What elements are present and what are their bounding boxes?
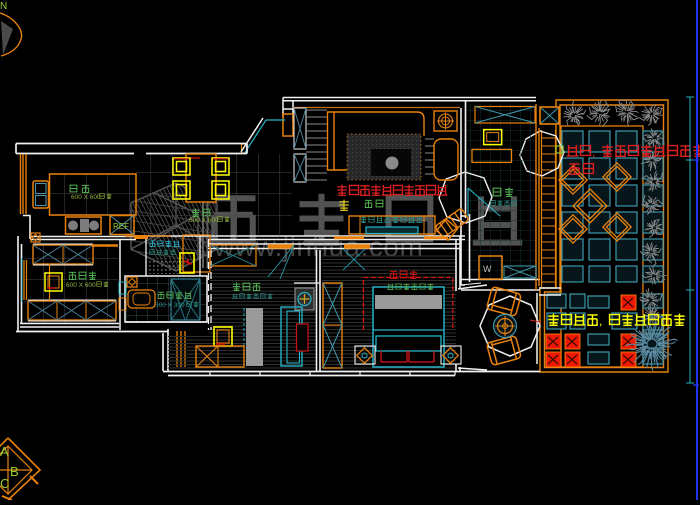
svg-text:REF: REF [113, 222, 129, 231]
svg-text:C: C [0, 476, 9, 491]
svg-text:600 X 600: 600 X 600 [71, 194, 101, 201]
svg-text:,: , [592, 145, 595, 159]
svg-text:300 X 300: 300 X 300 [155, 302, 185, 309]
svg-text:B: B [10, 464, 19, 479]
svg-text:A: A [0, 444, 9, 459]
svg-text:,: , [599, 314, 602, 328]
svg-text:N: N [0, 1, 7, 12]
svg-text:600 X 600: 600 X 600 [66, 282, 96, 289]
svg-text:600 X 600: 600 X 600 [189, 217, 219, 224]
svg-text:W: W [483, 264, 492, 274]
